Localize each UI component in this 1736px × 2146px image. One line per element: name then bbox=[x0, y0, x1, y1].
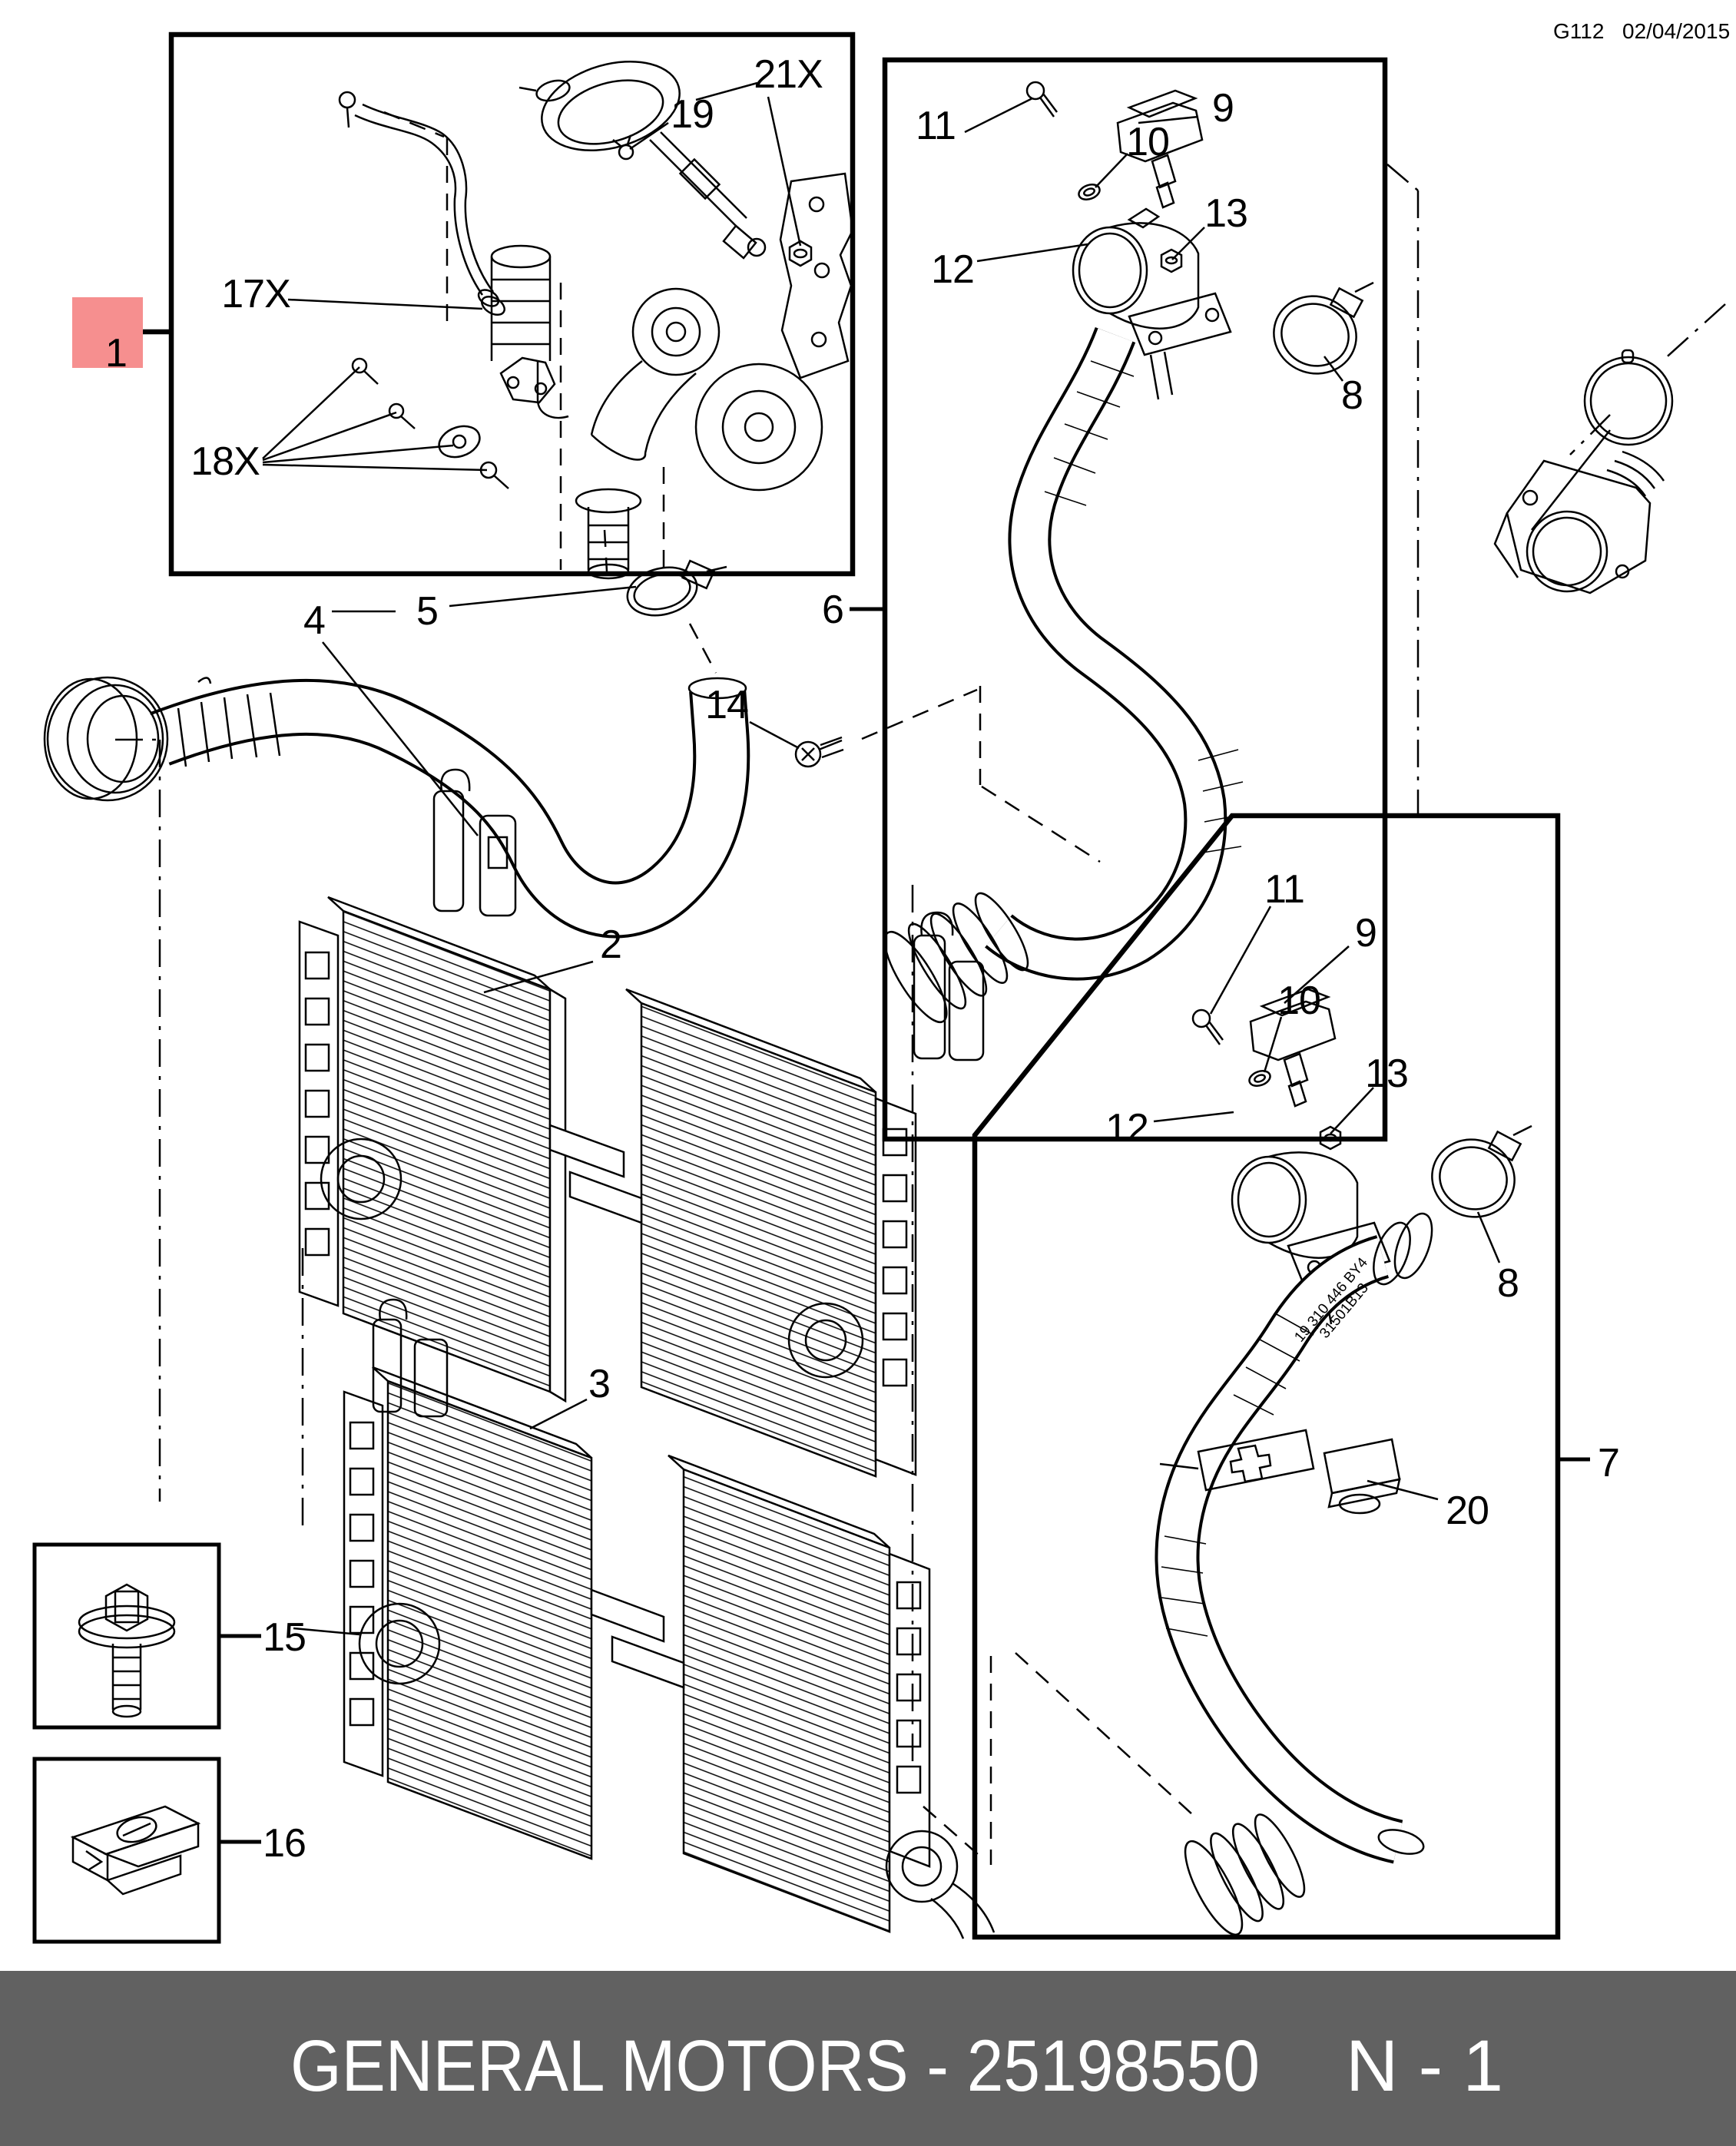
callout-14[interactable]: 14 bbox=[705, 683, 748, 727]
parts-diagram-canvas: G112 02/04/2015 1 bbox=[0, 0, 1736, 2146]
callout-17x[interactable]: 17X bbox=[221, 272, 290, 316]
map-sensor-assembly-6 bbox=[1027, 82, 1202, 207]
clamp-8b bbox=[1422, 1126, 1532, 1227]
drawing-code: G112 bbox=[1553, 19, 1604, 43]
callout-13-p6[interactable]: 13 bbox=[1204, 191, 1247, 236]
callout-12-p6[interactable]: 12 bbox=[931, 247, 974, 292]
drawing-date: 02/04/2015 bbox=[1622, 19, 1730, 43]
callout-10-p6[interactable]: 10 bbox=[1126, 120, 1169, 164]
intercooler-3-right-core bbox=[612, 1456, 994, 1939]
footer-page-number: N - 1 bbox=[1346, 2025, 1503, 2107]
callout-15[interactable]: 15 bbox=[263, 1615, 306, 1660]
panel-duct-6-box: 6 bbox=[705, 60, 1385, 1139]
panel6-window-dashes bbox=[862, 686, 1100, 862]
callout-10-p7[interactable]: 10 bbox=[1277, 979, 1320, 1023]
callout-9-p6[interactable]: 9 bbox=[1212, 86, 1234, 131]
hose-assembly-axis-dashes bbox=[605, 530, 716, 673]
callout-4[interactable]: 4 bbox=[303, 598, 325, 643]
throttle-axis-dashes bbox=[1570, 304, 1725, 455]
panel7-window-dashes bbox=[923, 1653, 1192, 1865]
callout-12-p7[interactable]: 12 bbox=[1105, 1106, 1148, 1151]
callout-11-p6[interactable]: 11 bbox=[916, 104, 956, 148]
callout-1[interactable]: 1 bbox=[105, 331, 127, 376]
o-ring-leader bbox=[1532, 430, 1610, 530]
callout-13-p7[interactable]: 13 bbox=[1365, 1051, 1408, 1096]
throttle-body-art bbox=[1495, 304, 1725, 593]
core-top-bracket-right bbox=[914, 912, 983, 1060]
callout-9-p7[interactable]: 9 bbox=[1355, 911, 1377, 955]
panel-turbocharger-box: 1 bbox=[72, 35, 853, 578]
left-charge-air-hose: 4 5 bbox=[45, 530, 746, 909]
callout-8-p7[interactable]: 8 bbox=[1497, 1261, 1519, 1306]
fastener-box-16: 16 bbox=[35, 1759, 306, 1942]
hose-clamp-5-art bbox=[622, 561, 727, 622]
wastegate-actuator-art bbox=[519, 47, 765, 258]
callout-19[interactable]: 19 bbox=[671, 92, 714, 137]
core-right-rail-3 bbox=[890, 1554, 929, 1866]
selected-part-callout-1[interactable]: 1 bbox=[72, 297, 171, 376]
intercooler-2-right-core bbox=[570, 912, 983, 1476]
screw-14-art bbox=[796, 737, 843, 767]
page-header: G112 02/04/2015 bbox=[1553, 19, 1730, 43]
callout-21x[interactable]: 21X bbox=[754, 52, 823, 97]
callout-6[interactable]: 6 bbox=[822, 588, 843, 632]
core-right-rail bbox=[876, 1098, 916, 1475]
callout-5-leader bbox=[449, 587, 636, 606]
duct7-fill bbox=[1177, 1257, 1398, 1842]
footer-brand-part: GENERAL MOTORS - 25198550 bbox=[290, 2025, 1260, 2107]
callout-11-p7[interactable]: 11 bbox=[1264, 867, 1304, 912]
duct6-fill bbox=[999, 335, 1205, 959]
callout-7[interactable]: 7 bbox=[1598, 1441, 1619, 1485]
callout-18x[interactable]: 18X bbox=[190, 439, 260, 484]
callout-5[interactable]: 5 bbox=[416, 589, 438, 634]
callout-8-p6[interactable]: 8 bbox=[1341, 373, 1363, 418]
throttle-o-ring bbox=[1585, 350, 1672, 445]
fastener-box-15: 15 bbox=[35, 1545, 306, 1727]
bolt-art bbox=[79, 1585, 174, 1717]
core-left-rail-3 bbox=[344, 1392, 383, 1776]
core-left-rail bbox=[300, 922, 338, 1306]
clamp-8a bbox=[1264, 283, 1373, 384]
callout-2[interactable]: 2 bbox=[600, 922, 621, 967]
duct7-end-muff bbox=[1175, 1809, 1314, 1942]
callout-16[interactable]: 16 bbox=[263, 1821, 306, 1866]
clip-nut-art bbox=[73, 1807, 198, 1894]
panel1-construction-dashes bbox=[384, 112, 664, 570]
panel-duct-7-box: 7 bbox=[923, 816, 1619, 1942]
callout-3-leader bbox=[530, 1399, 587, 1429]
callout-20[interactable]: 20 bbox=[1446, 1489, 1489, 1533]
oil-feed-pipe-art bbox=[340, 92, 508, 319]
panel1-leader-lines bbox=[263, 83, 800, 470]
callout-3[interactable]: 3 bbox=[588, 1362, 610, 1406]
page-footer: GENERAL MOTORS - 25198550 N - 1 bbox=[0, 1971, 1736, 2146]
